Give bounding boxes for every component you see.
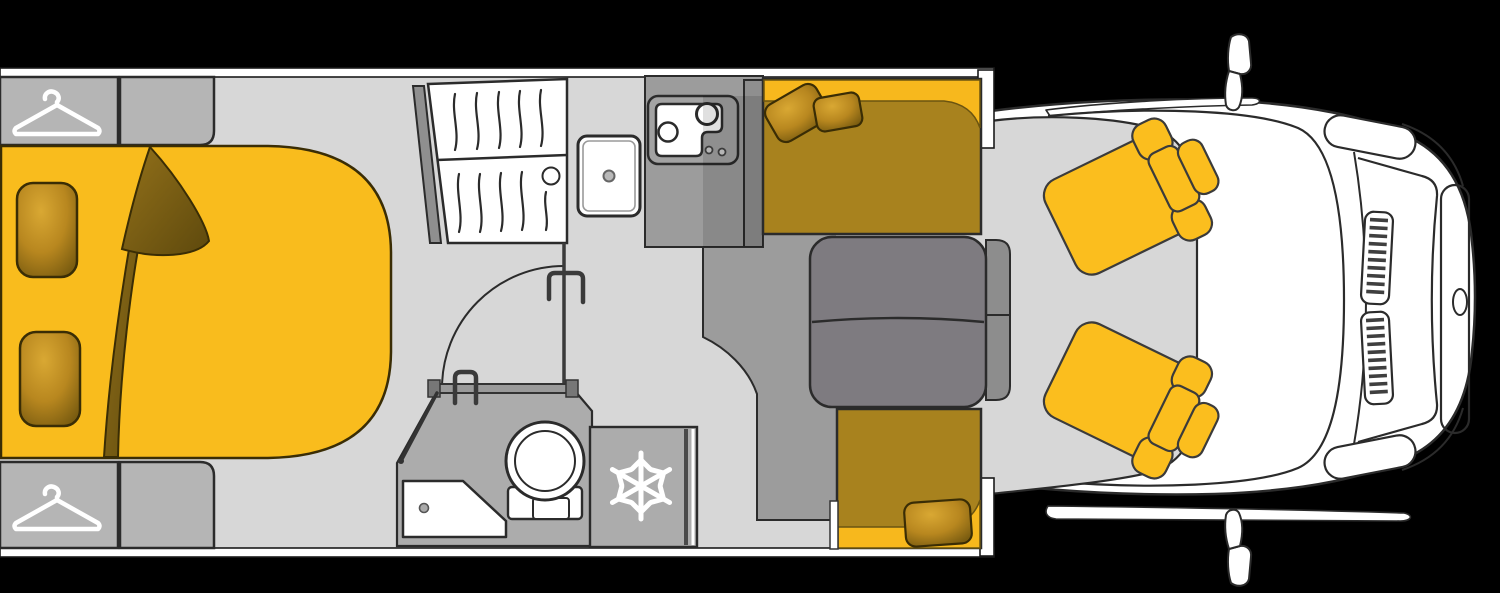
cab-console <box>986 240 1010 400</box>
partition-end-right <box>566 380 578 397</box>
overhead-locker-shadow <box>703 96 763 247</box>
motorhome-floorplan <box>0 0 1500 593</box>
washbasin-cabinet <box>578 136 640 216</box>
bed-pillow-bottom <box>20 332 80 426</box>
bench-wall-stub <box>830 501 838 549</box>
basin-drain <box>604 171 615 182</box>
dinette-rear-bench <box>830 409 981 549</box>
rear-wardrobe <box>0 462 118 548</box>
wall-top <box>0 68 994 77</box>
grille-vent-bottom <box>1361 311 1394 404</box>
dinette-front-bench <box>761 79 981 234</box>
grille-vent-top <box>1361 211 1394 304</box>
front-cabinet <box>120 77 214 145</box>
shower-drain <box>543 168 560 185</box>
dinette-table <box>810 237 986 407</box>
bench-cushion <box>904 499 973 547</box>
rear-cabinet <box>120 462 214 548</box>
faucet <box>659 123 678 142</box>
corner-basin-drain <box>420 504 429 513</box>
wall-bottom <box>0 548 994 557</box>
rod-hinge <box>398 458 404 464</box>
toilet <box>506 422 584 519</box>
refrigerator <box>590 427 697 547</box>
floorplan-image <box>0 0 1500 593</box>
kitchen-counter <box>645 76 763 247</box>
double-bed <box>1 146 391 458</box>
bench-cushion <box>812 91 863 132</box>
bed-pillow-top <box>17 183 77 277</box>
